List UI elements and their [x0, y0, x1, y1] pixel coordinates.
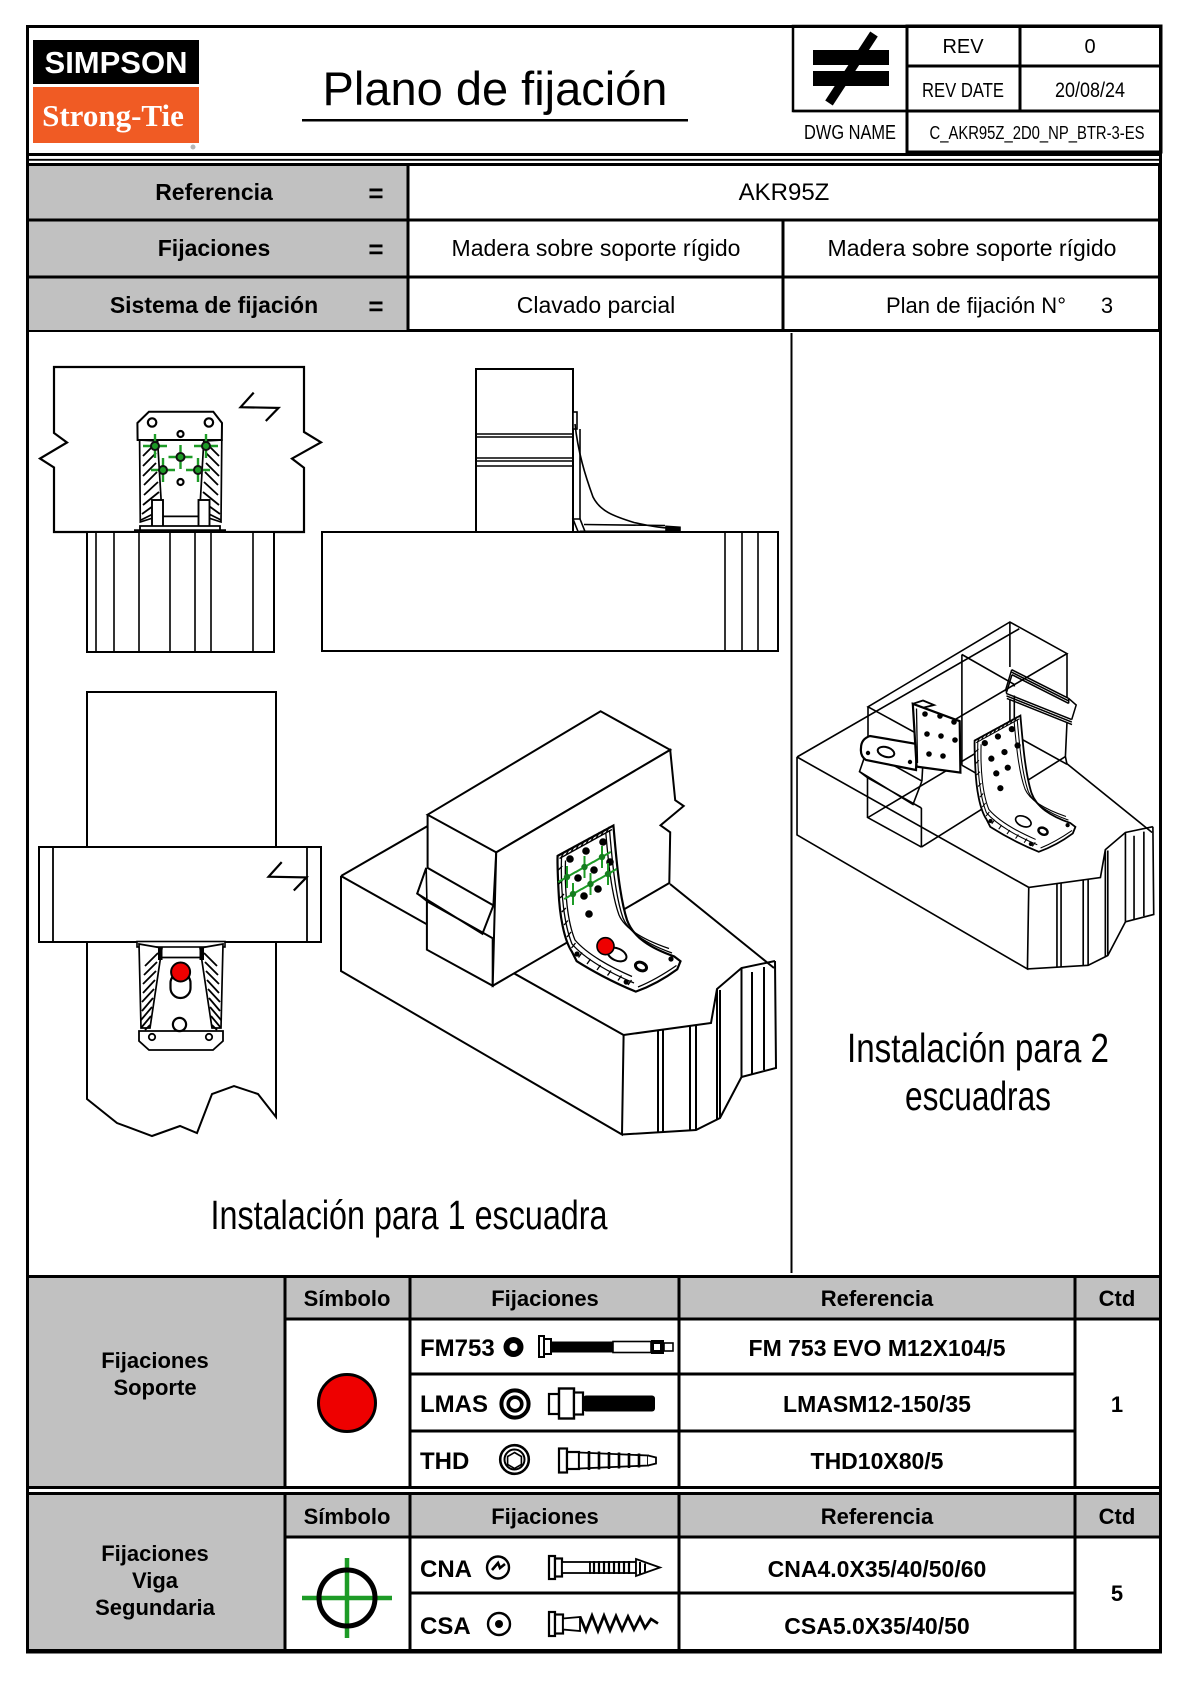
- svg-text:1: 1: [1111, 1392, 1123, 1417]
- svg-text:SIMPSON: SIMPSON: [45, 45, 188, 80]
- svg-text:REV DATE: REV DATE: [922, 80, 1004, 102]
- svg-text:Viga: Viga: [132, 1568, 179, 1593]
- svg-text:Instalación para 1 escuadra: Instalación para 1 escuadra: [211, 1192, 608, 1238]
- svg-text:=: =: [368, 234, 383, 264]
- svg-text:Clavado parcial: Clavado parcial: [517, 292, 676, 318]
- svg-text:LMASM12-150/35: LMASM12-150/35: [783, 1391, 971, 1417]
- svg-text:CSA5.0X35/40/50: CSA5.0X35/40/50: [784, 1613, 969, 1639]
- svg-text:20/08/24: 20/08/24: [1055, 79, 1125, 102]
- svg-text:Referencia: Referencia: [155, 179, 273, 205]
- svg-text:THD: THD: [420, 1448, 469, 1475]
- svg-text:5: 5: [1111, 1581, 1123, 1606]
- svg-text:FM 753 EVO M12X104/5: FM 753 EVO M12X104/5: [749, 1335, 1006, 1361]
- svg-text:Fijaciones: Fijaciones: [491, 1504, 599, 1529]
- svg-text:LMAS: LMAS: [420, 1391, 488, 1418]
- svg-text:AKR95Z: AKR95Z: [739, 179, 830, 206]
- svg-text:Símbolo: Símbolo: [304, 1286, 391, 1311]
- svg-text:Referencia: Referencia: [821, 1504, 934, 1529]
- svg-text:3: 3: [1101, 293, 1113, 318]
- svg-text:Ctd: Ctd: [1099, 1504, 1136, 1529]
- svg-text:Símbolo: Símbolo: [304, 1504, 391, 1529]
- svg-text:Fijaciones: Fijaciones: [101, 1348, 209, 1373]
- svg-text:Strong-Tie: Strong-Tie: [42, 98, 184, 133]
- svg-text:C_AKR95Z_2D0_NP_BTR-3-ES: C_AKR95Z_2D0_NP_BTR-3-ES: [930, 122, 1145, 144]
- svg-text:THD10X80/5: THD10X80/5: [811, 1448, 944, 1474]
- svg-text:Fijaciones: Fijaciones: [491, 1286, 599, 1311]
- svg-text:CNA4.0X35/40/50/60: CNA4.0X35/40/50/60: [768, 1556, 987, 1582]
- svg-text:CNA: CNA: [420, 1556, 472, 1583]
- svg-text:escuadras: escuadras: [905, 1073, 1051, 1119]
- svg-text:0: 0: [1084, 36, 1095, 58]
- svg-text:Plan de fijación N°: Plan de fijación N°: [886, 293, 1066, 318]
- svg-text:=: =: [368, 291, 383, 321]
- svg-text:Referencia: Referencia: [821, 1286, 934, 1311]
- svg-text:Madera sobre soporte rígido: Madera sobre soporte rígido: [452, 235, 741, 261]
- svg-text:Plano de fijación: Plano de fijación: [323, 62, 668, 115]
- svg-text:FM753: FM753: [420, 1335, 495, 1362]
- svg-text:DWG NAME: DWG NAME: [804, 122, 896, 144]
- svg-text:=: =: [368, 178, 383, 208]
- svg-text:Segundaria: Segundaria: [95, 1595, 216, 1620]
- svg-text:Instalación para 2: Instalación para 2: [847, 1025, 1109, 1071]
- svg-text:CSA: CSA: [420, 1613, 471, 1640]
- svg-text:Madera sobre soporte rígido: Madera sobre soporte rígido: [828, 235, 1117, 261]
- svg-text:Soporte: Soporte: [113, 1375, 196, 1400]
- svg-text:Fijaciones: Fijaciones: [101, 1541, 209, 1566]
- svg-text:Fijaciones: Fijaciones: [158, 235, 270, 261]
- svg-text:Ctd: Ctd: [1099, 1286, 1136, 1311]
- svg-text:REV: REV: [942, 36, 984, 58]
- svg-text:Sistema de fijación: Sistema de fijación: [110, 292, 318, 318]
